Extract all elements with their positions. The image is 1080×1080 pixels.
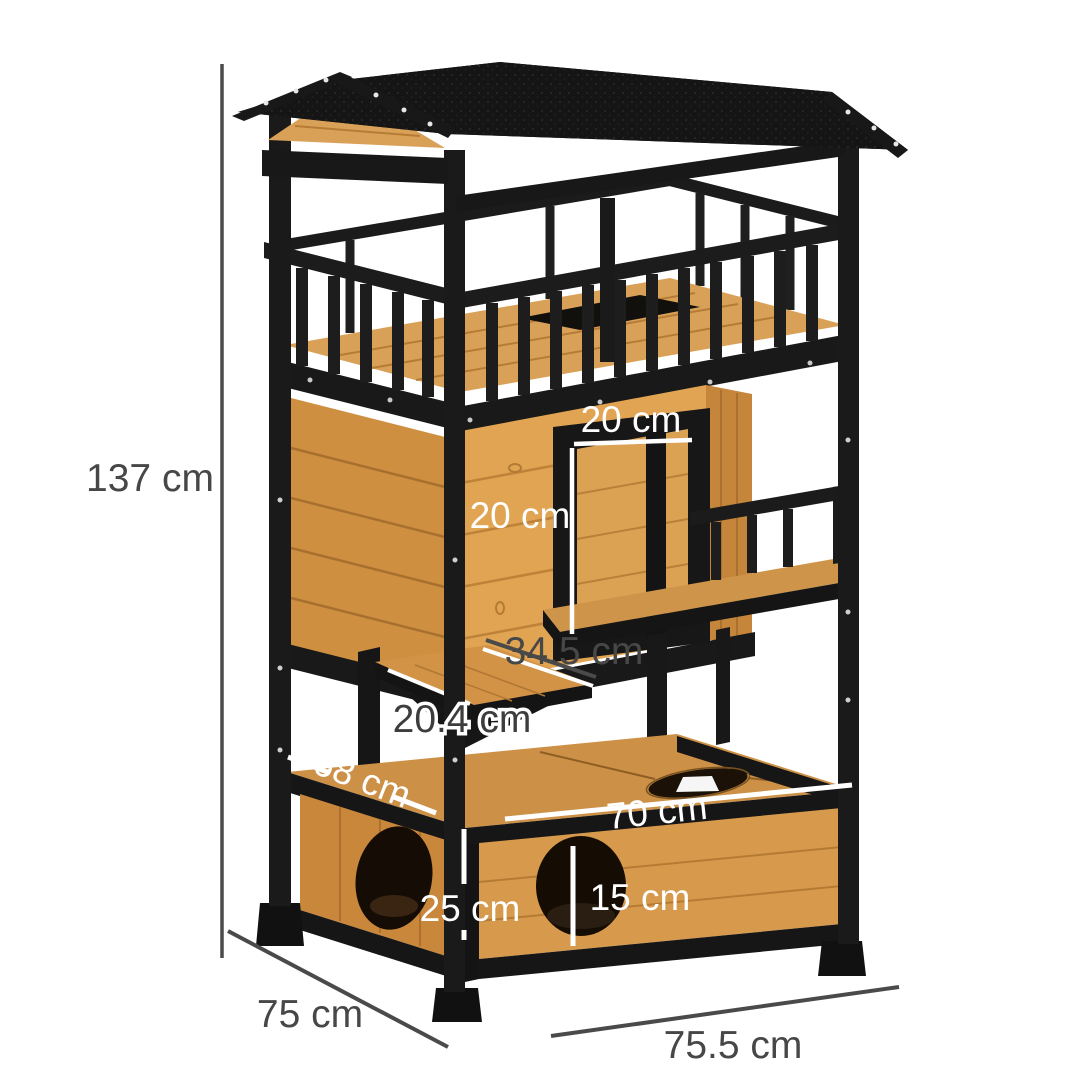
dim-label-total-height: 137 cm <box>86 457 214 500</box>
dim-label-shelf-depth: 20.4 cm <box>393 698 532 741</box>
dim-label-door-width: 20 cm <box>581 399 682 440</box>
dim-label-base-depth: 75 cm <box>257 993 363 1036</box>
cat-house-diagram: 137 cm <box>0 0 1080 1080</box>
side-hole-floor <box>370 895 418 917</box>
dim-label-base-width: 75.5 cm <box>664 1024 803 1067</box>
post-right <box>838 130 859 944</box>
roof <box>232 62 908 212</box>
post-back-upper <box>600 198 615 362</box>
foot-left <box>256 903 304 946</box>
dim-label-door-height: 20 cm <box>470 495 571 536</box>
roof-beam-right <box>456 140 845 212</box>
diagram-canvas: 137 cm <box>0 0 1080 1080</box>
landing-support-leg <box>716 627 730 745</box>
dim-label-shelf-width: 34.5 cm <box>505 630 644 673</box>
dimension-total-height: 137 cm <box>86 64 222 958</box>
house-left-face <box>291 398 445 688</box>
foot-right <box>818 941 866 976</box>
foot-front <box>432 988 482 1022</box>
back-post-lower <box>647 632 667 742</box>
dim-label-box-height: 25 cm <box>420 888 521 929</box>
dim-label-hole-diameter: 15 cm <box>590 877 691 918</box>
post-left <box>269 108 291 906</box>
balcony <box>264 180 850 432</box>
